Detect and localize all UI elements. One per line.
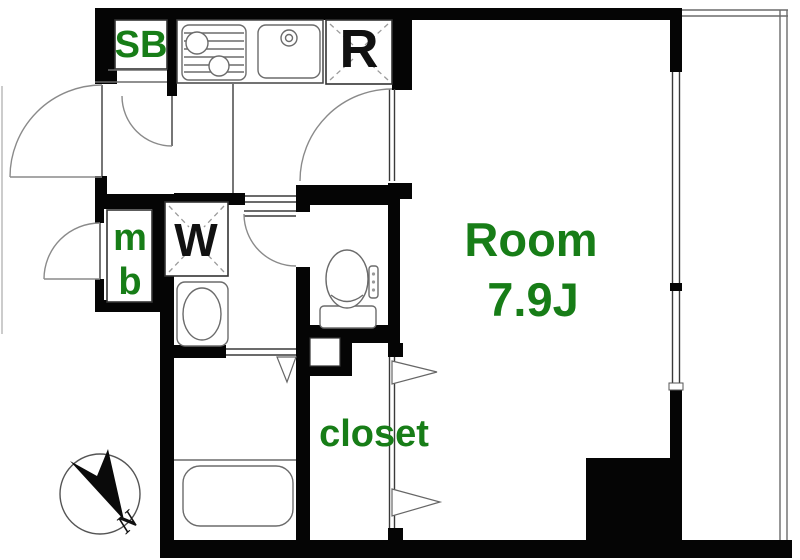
- floor-plan: SB R m b W Room 7.9J closet N: [0, 0, 800, 560]
- pillar: [586, 458, 682, 542]
- compass: N: [60, 449, 145, 540]
- bathtub: [174, 460, 296, 526]
- hall-door-swing: [122, 96, 172, 146]
- stove: [182, 25, 246, 80]
- room-name-label: Room: [464, 213, 597, 266]
- window: [669, 72, 683, 390]
- entrance-door-swing: [10, 85, 102, 177]
- bathroom-door: [226, 349, 296, 382]
- compass-needle: [70, 449, 124, 520]
- shoe-box-label: SB: [115, 24, 168, 66]
- toilet-bowl: [326, 250, 368, 308]
- meter-box-label-b: b: [118, 261, 141, 303]
- washing-machine-label: W: [174, 214, 218, 266]
- meter-box-label-m: m: [113, 217, 147, 259]
- toilet: [320, 250, 378, 328]
- meter-box-door-swing: [44, 223, 100, 279]
- toilet-tank: [320, 306, 376, 328]
- closet-label: closet: [319, 413, 429, 455]
- faucet: [281, 30, 297, 46]
- pipe-space: [300, 328, 352, 376]
- closet-door-arrow: [392, 361, 437, 384]
- room-door-swing: [300, 89, 395, 181]
- balcony: [682, 10, 788, 540]
- toilet-door-swing: [244, 211, 296, 266]
- kitchen-counter: [177, 20, 323, 83]
- folding-door-arrow: [277, 357, 296, 382]
- window-sash: [670, 283, 682, 291]
- floor-plan-svg: SB R m b W Room 7.9J closet N: [0, 0, 800, 560]
- washroom-doorway: [245, 196, 296, 202]
- closet-door-arrow: [392, 489, 440, 516]
- refrigerator-label: R: [340, 19, 379, 79]
- wash-basin: [177, 282, 228, 346]
- room-size-label: 7.9J: [487, 273, 578, 326]
- kitchen-sink: [258, 25, 320, 78]
